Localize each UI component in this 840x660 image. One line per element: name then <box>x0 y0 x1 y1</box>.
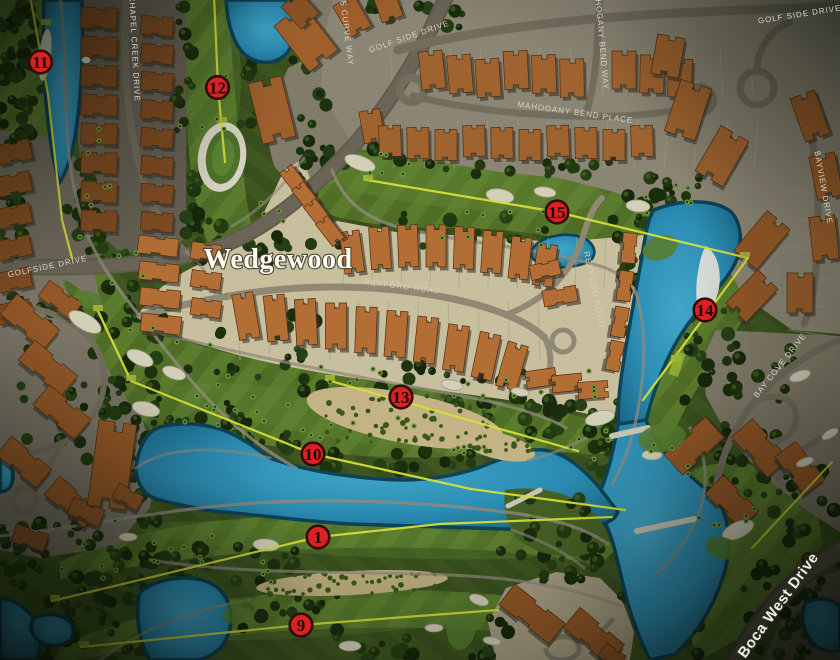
svg-text:13: 13 <box>393 388 410 407</box>
svg-text:9: 9 <box>297 616 306 635</box>
svg-text:11: 11 <box>32 53 48 72</box>
svg-text:12: 12 <box>209 78 226 97</box>
svg-text:14: 14 <box>697 301 715 320</box>
svg-text:Wedgewood: Wedgewood <box>203 244 352 275</box>
svg-text:1: 1 <box>314 528 323 547</box>
svg-text:15: 15 <box>549 203 566 222</box>
svg-text:10: 10 <box>305 445 322 464</box>
